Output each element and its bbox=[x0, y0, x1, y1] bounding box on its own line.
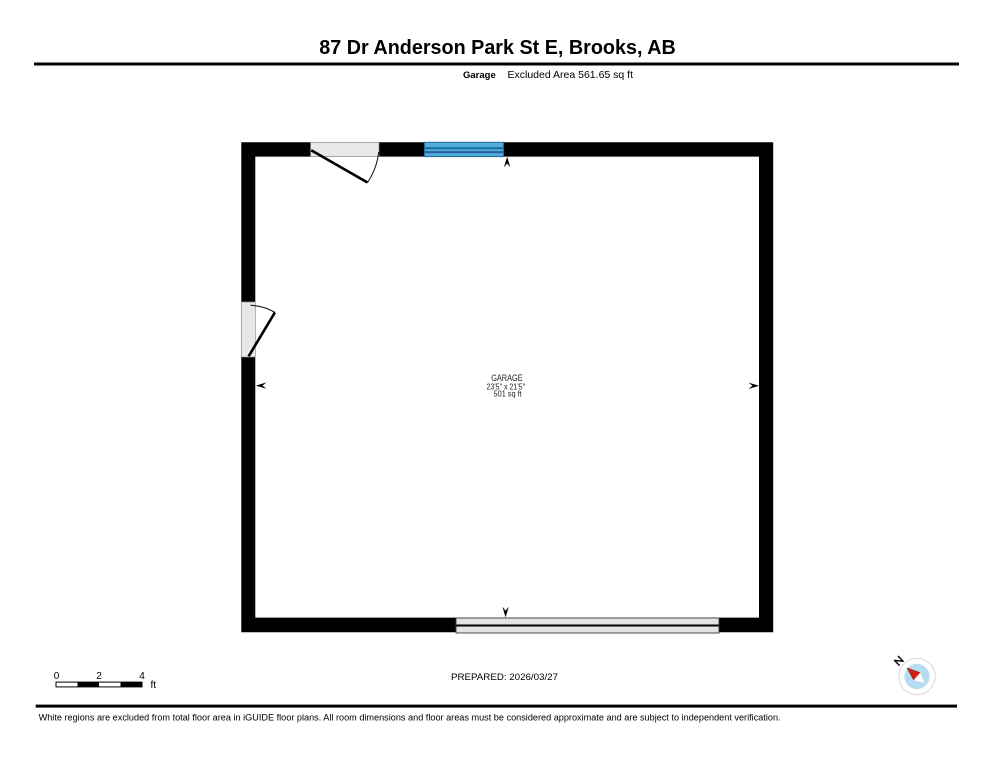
svg-text:ft: ft bbox=[151, 680, 157, 691]
svg-text:87 Dr Anderson Park St E, Broo: 87 Dr Anderson Park St E, Brooks, AB bbox=[319, 37, 676, 59]
svg-text:Garage: Garage bbox=[463, 70, 496, 81]
svg-text:2: 2 bbox=[96, 671, 102, 682]
svg-text:Excluded Area 561.65 sq ft: Excluded Area 561.65 sq ft bbox=[508, 69, 634, 81]
svg-text:501 sq ft: 501 sq ft bbox=[494, 390, 523, 399]
svg-text:4: 4 bbox=[139, 671, 145, 682]
svg-text:PREPARED: 2026/03/27: PREPARED: 2026/03/27 bbox=[451, 672, 558, 683]
svg-text:0: 0 bbox=[54, 671, 60, 682]
svg-text:White regions are excluded fro: White regions are excluded from total fl… bbox=[39, 712, 781, 722]
